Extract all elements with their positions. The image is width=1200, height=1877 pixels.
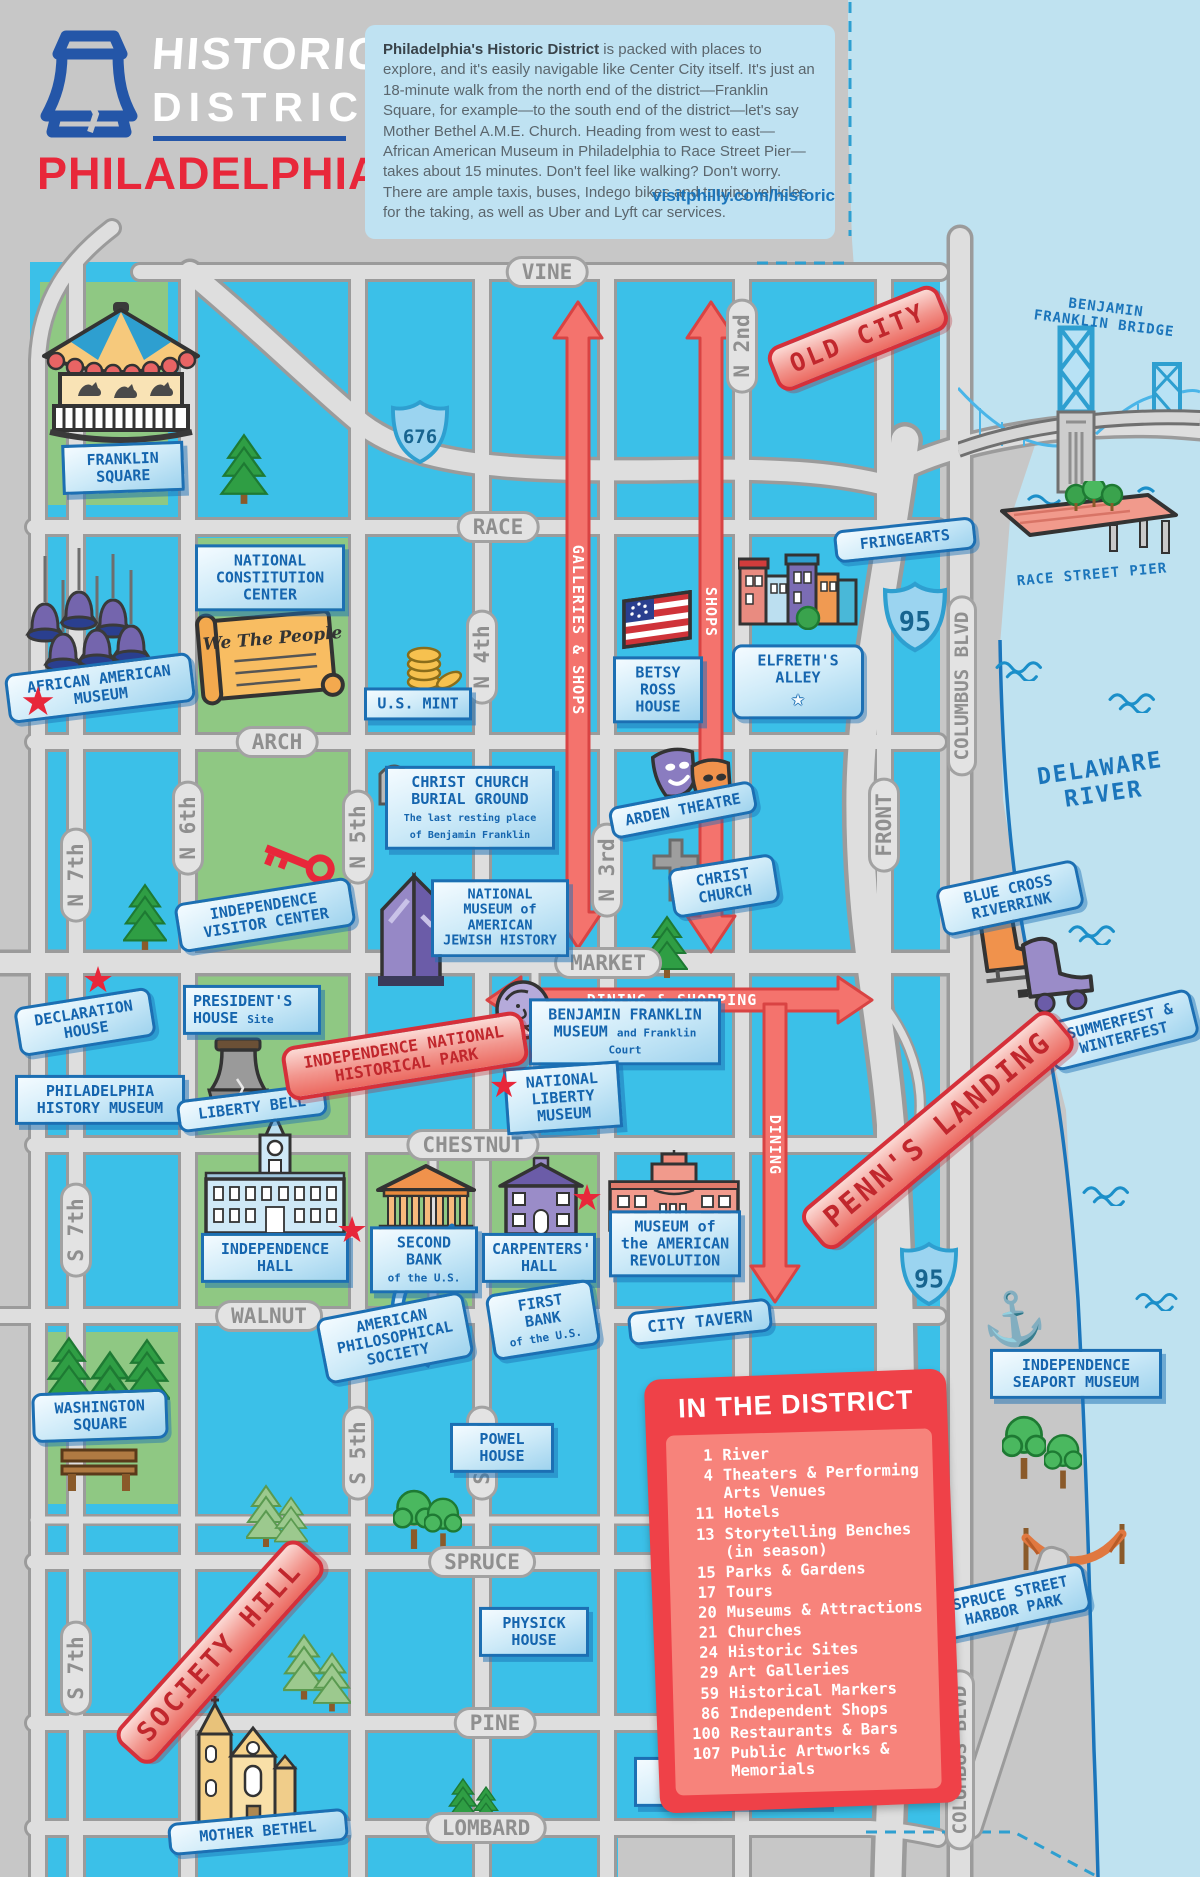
bell-garden-icon <box>20 540 160 670</box>
label-history-museum: PHILADELPHIA HISTORY MUSEUM <box>15 1075 185 1125</box>
street-pill-n2nd: N 2nd <box>726 298 758 393</box>
logo-city: PHILADELPHIA <box>37 148 382 200</box>
presidents-house-title: PRESIDENT'S HOUSE <box>193 992 292 1027</box>
street-pill-s7th-upper: S 7th <box>60 1182 92 1277</box>
label-franklin-square: FRANKLIN SQUARE <box>61 441 185 495</box>
label-powel-house: POWEL HOUSE <box>450 1423 554 1473</box>
star-icon <box>571 1180 603 1216</box>
street-pill-s5th: S 5th <box>342 1405 374 1500</box>
i95-number-south: 95 <box>914 1265 944 1294</box>
bench-icon <box>56 1446 144 1494</box>
race-street-pier-icon <box>1000 481 1180 561</box>
legend-in-the-district: IN THE DISTRICT 1River 4Theaters & Perfo… <box>644 1368 962 1813</box>
wave-icon <box>1068 922 1130 945</box>
label-jewish-history-museum: NATIONAL MUSEUM of AMERICAN JEWISH HISTO… <box>431 879 569 957</box>
street-pill-n7th: N 7th <box>60 827 92 922</box>
label-seaport-museum: INDEPENDENCE SEAPORT MUSEUM <box>990 1349 1162 1399</box>
street-pill-n5th: N 5th <box>342 789 374 884</box>
street-pill-s7th-lower: S 7th <box>60 1620 92 1715</box>
street-pill-vine: VINE <box>506 256 589 288</box>
label-am-revolution: MUSEUM of the AMERICAN REVOLUTION <box>609 1210 741 1277</box>
street-pill-front: FRONT <box>868 777 900 872</box>
label-us-mint: U.S. MINT <box>364 687 472 720</box>
street-pill-arch: ARCH <box>236 726 319 758</box>
i676-number: 676 <box>403 426 437 448</box>
presidents-house-sub: Site <box>247 1013 274 1026</box>
legend-list: 1River 4Theaters & Performing Arts Venue… <box>666 1428 942 1795</box>
legend-item: 107Public Artworks & Memorials <box>674 1738 933 1781</box>
carousel-icon <box>26 300 216 452</box>
logo-divider <box>153 136 346 141</box>
wave-icon <box>1135 1290 1191 1311</box>
star-icon <box>82 962 114 998</box>
historic-district-map: HISTORIC DISTRICT PHILADELPHIA Philadelp… <box>0 0 1200 1877</box>
galleries-shops-arrow-label: GALLERIES & SHOPS <box>569 545 587 716</box>
liberty-bell-logo-icon <box>30 18 148 146</box>
first-bank-title: FIRST BANK <box>517 1290 564 1331</box>
tree-icon <box>313 1648 351 1716</box>
coins-icon <box>404 636 462 694</box>
street-pill-n6th: N 6th <box>172 780 204 875</box>
second-bank-sub: of the U.S. <box>388 1272 461 1285</box>
elfreths-alley-text: ELFRETH'S ALLEY <box>757 651 838 686</box>
label-betsy-ross: BETSY ROSS HOUSE <box>613 656 703 723</box>
first-bank-sub: of the U.S. <box>509 1326 583 1350</box>
star-icon <box>489 1069 519 1103</box>
star-icon <box>336 1212 368 1248</box>
street-pill-pine: PINE <box>454 1707 537 1739</box>
tree-icon <box>1002 1414 1046 1480</box>
logo-subtitle: DISTRICT <box>152 84 397 131</box>
logo-title: HISTORIC <box>150 28 384 80</box>
legend-item: 13Storytelling Benches (in season) <box>668 1519 927 1562</box>
burial-ground-title: CHRIST CHURCH BURIAL GROUND <box>411 773 528 808</box>
intro-paragraph: Philadelphia's Historic District is pack… <box>365 25 835 239</box>
tree-icon <box>1044 1432 1082 1490</box>
label-liberty-museum: NATIONAL LIBERTY MUSEUM <box>503 1060 623 1135</box>
wave-icon <box>1082 1183 1144 1206</box>
label-elfreths-alley: ELFRETH'S ALLEY ★ <box>732 644 864 719</box>
star-icon: ★ <box>791 687 804 712</box>
street-pill-walnut: WALNUT <box>215 1300 323 1332</box>
second-bank-title: SECOND BANK <box>397 1233 451 1268</box>
shops-arrow-label: SHOPS <box>702 587 720 637</box>
label-independence-hall: INDEPENDENCE HALL <box>201 1233 349 1283</box>
anchor-icon <box>978 1290 1049 1351</box>
burial-ground-sub: The last resting place of Benjamin Frank… <box>404 813 536 841</box>
dining-arrow-label: DINING <box>766 1115 784 1175</box>
street-pill-race: RACE <box>457 511 540 543</box>
street-pill-lombard: LOMBARD <box>426 1812 547 1844</box>
tree-icon <box>424 1496 462 1552</box>
intro-lead: Philadelphia's Historic District <box>383 41 599 58</box>
star-icon <box>20 682 56 722</box>
label-washington-square: WASHINGTON SQUARE <box>31 1389 169 1444</box>
tree-icon <box>123 883 167 951</box>
street-pill-market: MARKET <box>554 947 662 979</box>
franklin-museum-sub: and Franklin Court <box>608 1026 696 1056</box>
label-second-bank: SECOND BANK of the U.S. <box>370 1226 478 1293</box>
wave-icon <box>995 658 1057 681</box>
street-pill-spruce: SPRUCE <box>428 1546 536 1578</box>
label-physick-house: PHYSICK HOUSE <box>479 1607 589 1657</box>
tree-icon <box>218 433 270 505</box>
betsy-ross-flag-icon <box>618 590 696 664</box>
i95-number-north: 95 <box>899 607 932 638</box>
label-burial-ground: CHRIST CHURCH BURIAL GROUND The last res… <box>385 766 555 850</box>
label-franklin-museum: BENJAMIN FRANKLIN MUSEUM and Franklin Co… <box>529 998 721 1065</box>
street-pill-columbus-north: COLUMBUS BLVD <box>947 596 977 777</box>
wave-icon <box>1108 690 1170 713</box>
label-presidents-house: PRESIDENT'S HOUSE Site <box>183 985 321 1035</box>
label-carpenters-hall: CARPENTERS' HALL <box>482 1233 596 1283</box>
label-constitution-center: NATIONAL CONSTITUTION CENTER <box>195 544 345 611</box>
legend-item: 4Theaters & Performing Arts Venues <box>667 1461 926 1504</box>
visitphilly-link[interactable]: visitphilly.com/historic <box>640 186 835 206</box>
